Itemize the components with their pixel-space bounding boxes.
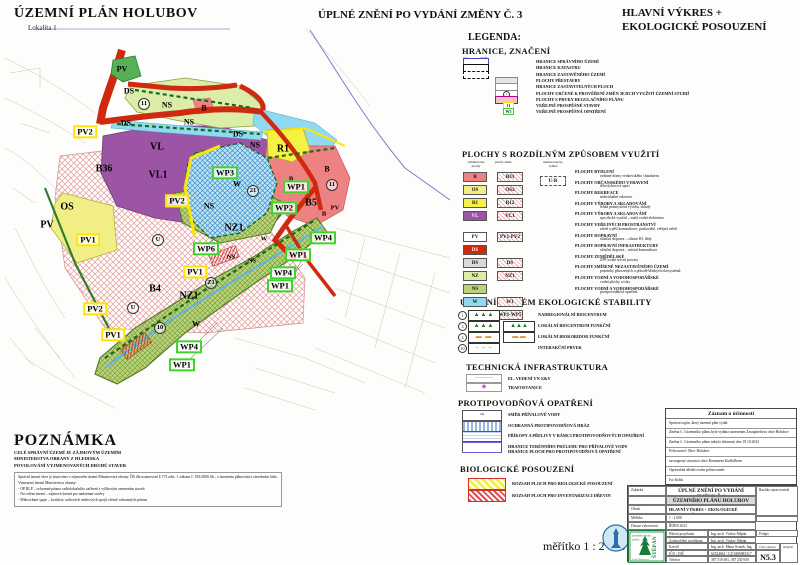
map-label-ns: NS [204, 202, 214, 211]
flood-swatch-dir: ⇒ [462, 410, 502, 421]
zaznam-line: zastoupený starostou obce Romanem Kudláč… [666, 457, 796, 467]
plochy-stab-os: OS [463, 185, 487, 195]
map-label-r1: R1 [277, 144, 289, 155]
uses-swatch: ▲▲▲ [468, 310, 500, 321]
plochy-item-sub: zeleň a pěší komunikace, parkoviště, veř… [600, 227, 677, 231]
map-label-ns: NS [248, 258, 256, 265]
map-label-pv2: PV2 [165, 194, 189, 207]
plochy-col2: plochy změn [495, 160, 511, 164]
map-label-b5: B5 [305, 198, 317, 209]
note-title: POZNÁMKA [14, 432, 314, 450]
map-label-pv1: PV1 [101, 328, 125, 341]
legend-tech-title: TECHNICKÁ INFRASTRUKTURA [466, 362, 608, 372]
hranice-label: HRANICE ZASTAVITELNÝCH PLOCH [536, 84, 613, 89]
flood-label2: HRANICE PLOCH PRO PROTIPOVODŇOVÁ OPATŘEN… [508, 449, 621, 454]
plochy-item-sub: rodinné domy venkovského charakteru [600, 174, 659, 178]
plochy-stab-w: W [463, 297, 487, 307]
tech-label: TRAFOSTANICE [508, 385, 542, 390]
tb-row-value: Ing. arch. Marta Svatek, Ing. Drahomil S… [708, 543, 756, 550]
hranice-swatch-tag-green: W5 [503, 108, 514, 115]
map-label-pv: PV [117, 65, 128, 74]
zaznam-line: Správní orgán, který územní plán vydal: [666, 419, 796, 429]
tb-cislo-label: Číslo výkresu [756, 543, 780, 550]
plochy-col3: územní rezervy výhled [536, 160, 570, 168]
plochy-zmena-wp1-wp5: WP1-WP5 [497, 310, 523, 320]
note-bullet: - Mikrovlnné spoje – koridory radiových … [18, 498, 278, 504]
tb-razitko-label: Razítko zpracovatele [756, 486, 798, 516]
hranice-label: PLOCHY PŘESTAVBY [536, 78, 580, 83]
hranice-label: VEŘEJNĚ PROSPĚŠNÉ STAVBY [536, 103, 600, 108]
tb-zakazka-value1: ÚPLNÉ ZNĚNÍ PO VYDÁNÍ ZMĚNY Č. 3 [666, 486, 756, 496]
map-label-b: B [201, 104, 206, 113]
plochy-zmena-pv1-pv2: PV1-PV2 [497, 232, 523, 242]
map-label-ns: NS [184, 118, 194, 127]
map-label-z1: Z1 [205, 277, 217, 289]
flood-label: SMĚR PŘÍVALOVÉ VODY [508, 412, 560, 417]
uses-label: INTERAKČNÍ PRVEK [538, 345, 582, 350]
bio-label: ROZSAH PLOCH PRO INVENTARIZACI DŘEVIN [512, 493, 611, 498]
map-label-10: 10 [154, 322, 166, 334]
bio-swatch-byellow [468, 478, 506, 490]
map-label-wp1: WP1 [285, 248, 311, 261]
plochy-item-sub: pozemky přirozených a přírodě blízkých e… [600, 269, 680, 273]
studio-logo-icon: architektonický ateliér ŠTĚPÁN České Bud… [629, 531, 665, 562]
note-bold-line: POVOLOVÁNÍ VYJMENOVANÝCH DRUHŮ STAVEB [14, 463, 314, 469]
studio-logo: architektonický ateliér ŠTĚPÁN České Bud… [628, 530, 666, 563]
hranice-label: HRANICE ZASTAVĚNÉHO ÚZEMÍ [536, 72, 605, 77]
uses-swatch: ▬ ▬ [468, 332, 500, 343]
plochy-rezerva-swatch: U-R [540, 176, 566, 186]
uses-swatch: ▲▲▲ [468, 321, 500, 332]
tb-row-value: 387 318 491, 387 230 930 [708, 556, 756, 563]
map-label-wp1: WP1 [283, 180, 309, 193]
hranice-swatch-box-dash [463, 71, 489, 79]
tb-row-label: IČO / DIČ [666, 550, 708, 557]
map-label-pv1: PV1 [76, 233, 100, 246]
map-label-pv2: PV2 [73, 125, 97, 138]
note-bold-lines: CELÉ SPRÁVNÍ ÚZEMÍ JE ZÁJMOVÝM ÚZEMÍMMIN… [14, 450, 314, 469]
map-label-wp4: WP4 [176, 340, 202, 353]
map-label-wp3: WP3 [212, 166, 238, 179]
map-label-nz1: NZ1 [180, 291, 199, 302]
tb-spacer [628, 496, 666, 505]
svg-text:ateliér: ateliér [632, 538, 640, 542]
tech-swatch: ◆ [466, 383, 502, 392]
map-label-b4: B4 [149, 284, 161, 295]
title-center: ÚPLNÉ ZNĚNÍ PO VYDÁNÍ ZMĚNY Č. 3 [318, 9, 522, 21]
note-bullets: - OP RLP – ochranné pásmo radiolokačního… [18, 487, 278, 504]
tech-swatch: ——— [466, 374, 502, 383]
bio-label: ROZSAH PLOCH PRO BIOLOGICKÉ POSOUZENÍ [512, 481, 613, 486]
flood-swatch-hraz [462, 421, 502, 432]
zaznam-line: Změna č. 3 územního plánu byla vydána us… [666, 429, 796, 439]
zoning-map: PVDSDSDSNSNSNSBBBBB5PVR1VLVL1B36B4OSPVWW… [5, 28, 450, 413]
plochy-stab-vl: VL [463, 211, 487, 221]
plochy-item-sub: protipovodňová opatření [600, 290, 637, 294]
tb-obsah-label: Obsah [628, 505, 666, 514]
tb-cislo-value: N5.3 [756, 550, 780, 563]
tb-row-extra: Podpis [756, 530, 798, 537]
map-label-u: U [127, 302, 139, 314]
plochy-stab-b: B [463, 172, 487, 182]
legend-bio-title: BIOLOGICKÉ POSOUZENÍ [460, 464, 574, 474]
tb-meritko-value: 1 : 2 000 [666, 514, 756, 522]
map-label-ns: NS [250, 141, 260, 150]
svg-text:ŠTĚPÁN: ŠTĚPÁN [650, 536, 658, 558]
bio-swatch-bred [468, 490, 506, 502]
plan-sheet: { "header": { "title_left": "ÚZEMNÍ PLÁN… [0, 0, 800, 565]
zaznam-line: Pořizovatel: Obec Holubov [666, 448, 796, 458]
plochy-zmena-vl1: VL1 [497, 211, 523, 221]
uses-swatch-navrh: ▬ ▬ [503, 332, 535, 343]
map-label-pv2: PV2 [83, 302, 107, 315]
map-label-wp1: WP1 [267, 279, 293, 292]
map-label-pv1: PV1 [183, 265, 207, 278]
uses-num: 1 [458, 311, 467, 320]
map-label-wp2: WP2 [271, 201, 297, 214]
plochy-zmena-nz1: NZ1 [497, 271, 523, 281]
legend-uses-title: ÚZEMNÍ SYSTÉM EKOLOGICKÉ STABILITY [460, 297, 652, 307]
page-title: ÚZEMNÍ PLÁN HOLUBOV [14, 6, 198, 22]
tb-row-value: Ing. arch. Václav Štěpán [708, 530, 756, 537]
map-label-pv: PV [40, 220, 53, 231]
legend-flood-title: PROTIPOVODŇOVÁ OPATŘENÍ [458, 398, 593, 408]
tb-meritko-label: Měřítko [628, 514, 666, 522]
tb-datum-value: ŘÍJEN 2023 [666, 522, 756, 530]
tb-row-label: Hlavní projektant [666, 530, 708, 537]
map-label-b: B [324, 165, 329, 174]
flood-label: OCHRANNÁ PROTIPOVODŇOVÁ HRÁZ [508, 423, 590, 428]
map-label-w: W [233, 180, 241, 189]
map-label-w: W [261, 236, 268, 243]
map-label-ns: NS [162, 101, 172, 110]
map-label-ns: NS [227, 254, 235, 261]
map-label-w: W [192, 320, 200, 329]
legend-title: LEGENDA: [468, 32, 521, 43]
title-right-line1: HLAVNÍ VÝKRES + [622, 7, 767, 21]
tb-original-label: Originál [780, 543, 798, 563]
plochy-stab-nz: NZ [463, 271, 487, 281]
title-right-line2: EKOLOGICKÉ POSOUZENÍ [622, 21, 767, 35]
plochy-item-sub: silniční doprava – místní komunikace [600, 248, 657, 252]
uses-label: LOKÁLNÍ BIOKORIDOR FUNKČNÍ [538, 334, 609, 339]
plochy-stab-r1: R1 [463, 198, 487, 208]
plochy-stab-ds: DS [463, 245, 487, 255]
plochy-item-sub: specifické využití – malá vodní elektrár… [600, 216, 664, 220]
zaznam-lines: Správní orgán, který územní plán vydal:Z… [666, 419, 796, 486]
hranice-label: HRANICE SPRÁVNÍHO ÚZEMÍ [536, 59, 599, 64]
tb-zakazka-value2: ÚZEMNÍHO PLÁNU HOLUBOV [666, 496, 756, 505]
zaznam-line: Oprávněná úřední osoba pořizovatele: [666, 467, 796, 477]
map-label-os: OS [60, 202, 73, 213]
tb-row-label: Telefon [666, 556, 708, 563]
effectiveness-record: Záznam o účinnosti Správní orgán, který … [665, 408, 797, 485]
map-label-nz1: NZ1 [225, 223, 244, 234]
map-label-wp4: WP4 [270, 266, 296, 279]
tb-datum-label: Datum vyhotovení [628, 522, 666, 530]
zaznam-title: Záznam o účinnosti [666, 409, 796, 419]
legend-hranice-title: HRANICE, ZNAČENÍ [462, 46, 550, 56]
map-label-wp4: WP4 [310, 231, 336, 244]
plochy-zmena-os2: OS2 [497, 185, 523, 195]
plochy-item-sub: lehká průmyslová výroba, sklady [600, 205, 650, 209]
map-canvas [5, 28, 450, 413]
plochy-col1: stabilizované plochy [461, 160, 491, 168]
hranice-label: VEŘEJNĚ PROSPĚŠNÁ OPATŘENÍ [536, 109, 606, 114]
zaznam-line: Změna č. 3 územního plánu nabyla účinnos… [666, 438, 796, 448]
map-label-wp6: WP6 [193, 242, 219, 255]
plochy-item-sub: individuální rekreace [600, 195, 632, 199]
flood-label: PŘÍKOPY A PŘELIVY V RÁMCI PROTIPOVODŇOVÝ… [508, 433, 644, 438]
tb-row-label: Kreslil [666, 543, 708, 550]
tb-zakazka-label: Zakázka [628, 486, 666, 496]
map-label-pv: PV [331, 205, 340, 212]
note-fine-print: Správní území obce je situováno v zájmov… [14, 472, 282, 506]
plochy-zmena-b33: B33 [497, 172, 523, 182]
uses-num: 3 [458, 322, 467, 331]
plochy-item-sub: ZPF trvale travní porosty [600, 258, 638, 262]
svg-text:České Budějovice: České Budějovice [632, 558, 649, 561]
map-label-ds: DS [233, 130, 243, 139]
legend-plochy-title: PLOCHY S ROZDÍLNÝM ZPŮSOBEM VYUŽITÍ [462, 149, 660, 159]
tb-razitko-space [756, 516, 798, 522]
hranice-label: HRANICE KATASTRU [536, 65, 581, 70]
tb-row-value: 62524661 / CZ 6309081317 [708, 550, 756, 557]
note-block: POZNÁMKA CELÉ SPRÁVNÍ ÚZEMÍ JE ZÁJMOVÝM … [14, 432, 314, 507]
tb-obsah-value: HLAVNÍ VÝKRES + EKOLOGICKÉ POSOUZENÍ [666, 505, 756, 514]
tb-row-value: Ing. arch. Václav Štěpán [708, 537, 756, 544]
tech-label: EL. VEDENÍ VN 22kV [508, 376, 551, 381]
flood-swatch-hranice [462, 442, 502, 453]
uses-label: LOKÁLNÍ BIOCENTRUM FUNKČNÍ [538, 323, 611, 328]
map-label-ds: DS [121, 119, 131, 128]
uses-label: NADREGIONÁLNÍ BIOCENTRUM [538, 312, 607, 317]
flood-swatch-preliv [462, 431, 502, 442]
plochy-item-sub: silniční doprava – silnice III. třídy [600, 237, 652, 241]
hranice-label: PLOCHY S PRVKY REGULAČNÍHO PLÁNU [536, 97, 624, 102]
title-right: HLAVNÍ VÝKRES + EKOLOGICKÉ POSOUZENÍ [622, 7, 767, 35]
map-label-11: 11 [326, 179, 338, 191]
map-label-b: B [322, 211, 326, 218]
map-label-ds: DS [124, 87, 134, 96]
map-label-wp1: WP1 [169, 358, 195, 371]
map-label-vl1: VL1 [149, 170, 168, 181]
hranice-label: PLOCHY URČENÉ K PROVĚŘENÍ ZMĚN JEJICH VY… [536, 91, 689, 96]
uses-swatch-navrh: ▲▲▲ [503, 321, 535, 332]
uses-swatch: – – – [468, 343, 500, 354]
plochy-item-sub: tělovýchova a sport [600, 184, 630, 188]
uses-num: 4 [458, 333, 467, 342]
plochy-zmena-w1: W1 [497, 297, 523, 307]
plochy-item-sub: vodní plochy a toky [600, 280, 630, 284]
map-label-11: 11 [138, 98, 150, 110]
map-label-21: 21 [247, 185, 259, 197]
plochy-zmena-r12: R12 [497, 198, 523, 208]
uses-num: 10 [458, 344, 467, 353]
map-label-b36: B36 [96, 164, 113, 175]
map-label-vl: VL [150, 142, 164, 153]
plochy-stab-ns: NS [463, 284, 487, 294]
plochy-zmena-ds: DS [497, 258, 523, 268]
plochy-stab-ds: DS [463, 258, 487, 268]
tb-row-label: Zodpovědný projektant [666, 537, 708, 544]
map-label-u: U [152, 234, 164, 246]
title-block: Zakázka ÚPLNÉ ZNĚNÍ PO VYDÁNÍ ZMĚNY Č. 3… [627, 485, 797, 562]
plochy-stab-pv: PV [463, 232, 487, 242]
